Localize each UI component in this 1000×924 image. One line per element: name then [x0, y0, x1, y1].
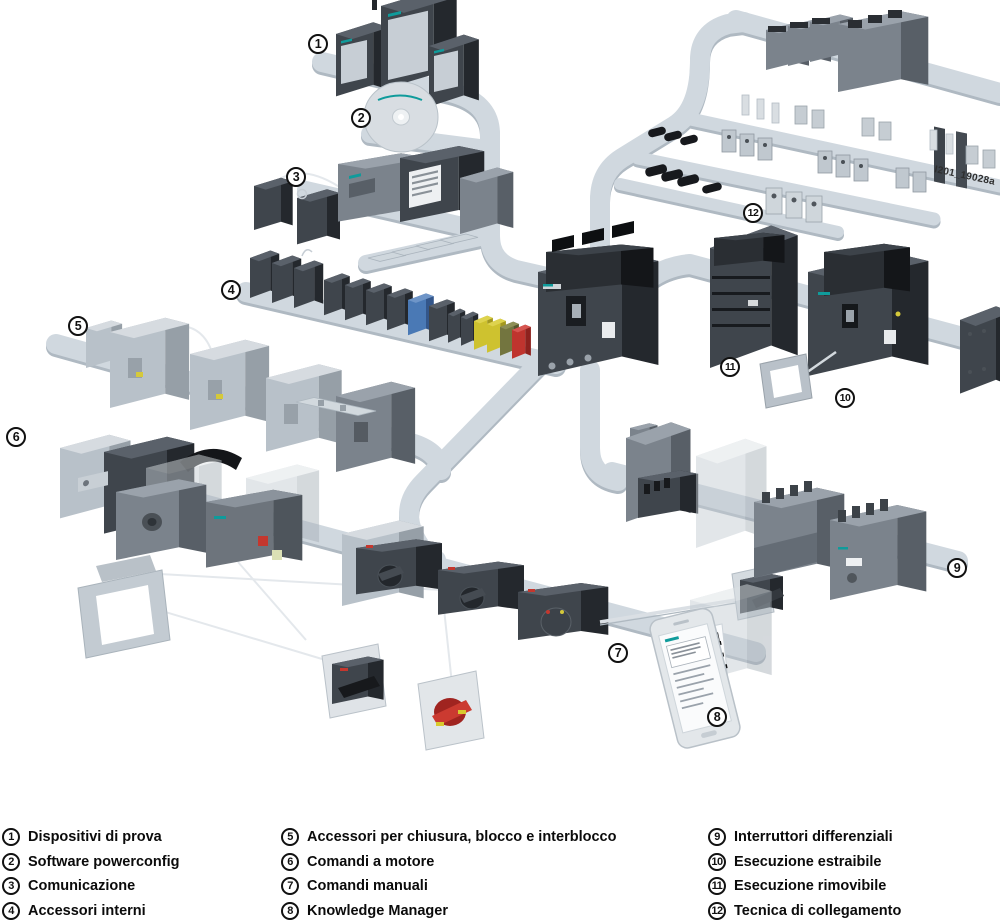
software-disc	[364, 82, 438, 152]
callout-8: 8	[707, 707, 727, 727]
callout-11: 11	[720, 357, 740, 377]
legend-item-9: 9 Interruttori differenziali	[708, 826, 893, 848]
legend-label-1: Dispositivi di prova	[28, 829, 162, 845]
legend-num-2: 2	[2, 853, 20, 871]
legend-num-12: 12	[708, 902, 726, 920]
legend-item-8: 8 Knowledge Manager	[281, 900, 448, 922]
callout-2: 2	[351, 108, 371, 128]
callout-7: 7	[608, 643, 628, 663]
legend-label-6: Comandi a motore	[307, 854, 434, 870]
legend-num-4: 4	[2, 902, 20, 920]
drawout-plugin-group	[710, 226, 1000, 409]
legend-num-11: 11	[708, 877, 726, 895]
legend-item-4: 4 Accessori interni	[2, 900, 146, 922]
system-overview-illustration: I201_19028a	[0, 0, 1000, 820]
legend-num-9: 9	[708, 828, 726, 846]
legend-item-3: 3 Comunicazione	[2, 875, 135, 897]
legend-label-12: Tecnica di collegamento	[734, 903, 901, 919]
motor-operators-group	[60, 435, 319, 658]
knowledge-manager-group	[648, 584, 772, 750]
legend-num-1: 1	[2, 828, 20, 846]
legend-num-3: 3	[2, 877, 20, 895]
legend-item-5: 5 Accessori per chiusura, blocco e inter…	[281, 826, 616, 848]
legend-label-5: Accessori per chiusura, blocco e interbl…	[307, 829, 616, 845]
legend-num-8: 8	[281, 902, 299, 920]
callout-3: 3	[286, 167, 306, 187]
legend-item-12: 12 Tecnica di collegamento	[708, 900, 901, 922]
legend-num-10: 10	[708, 853, 726, 871]
legend-label-4: Accessori interni	[28, 903, 146, 919]
callout-9: 9	[947, 558, 967, 578]
legend-label-10: Esecuzione estraibile	[734, 854, 881, 870]
callout-4: 4	[221, 280, 241, 300]
legend-num-5: 5	[281, 828, 299, 846]
callout-10: 10	[835, 388, 855, 408]
callout-6: 6	[6, 427, 26, 447]
legend-label-7: Comandi manuali	[307, 878, 428, 894]
legend-label-3: Comunicazione	[28, 878, 135, 894]
communication-group	[254, 146, 513, 244]
callout-12: 12	[743, 203, 763, 223]
legend-num-7: 7	[281, 877, 299, 895]
legend-label-2: Software powerconfig	[28, 854, 179, 870]
callout-5: 5	[68, 316, 88, 336]
legend-item-1: 1 Dispositivi di prova	[2, 826, 162, 848]
legend-label-9: Interruttori differenziali	[734, 829, 893, 845]
legend-item-11: 11 Esecuzione rimovibile	[708, 875, 886, 897]
page: { "figure": { "watermark": "I201_19028a"…	[0, 0, 1000, 924]
legend-item-6: 6 Comandi a motore	[281, 851, 434, 873]
legend-item-2: 2 Software powerconfig	[2, 851, 179, 873]
legend-label-11: Esecuzione rimovibile	[734, 878, 886, 894]
callout-1: 1	[308, 34, 328, 54]
legend-item-7: 7 Comandi manuali	[281, 875, 428, 897]
legend-num-6: 6	[281, 853, 299, 871]
rcd-group	[626, 422, 926, 600]
legend-item-10: 10 Esecuzione estraibile	[708, 851, 881, 873]
legend-label-8: Knowledge Manager	[307, 903, 448, 919]
